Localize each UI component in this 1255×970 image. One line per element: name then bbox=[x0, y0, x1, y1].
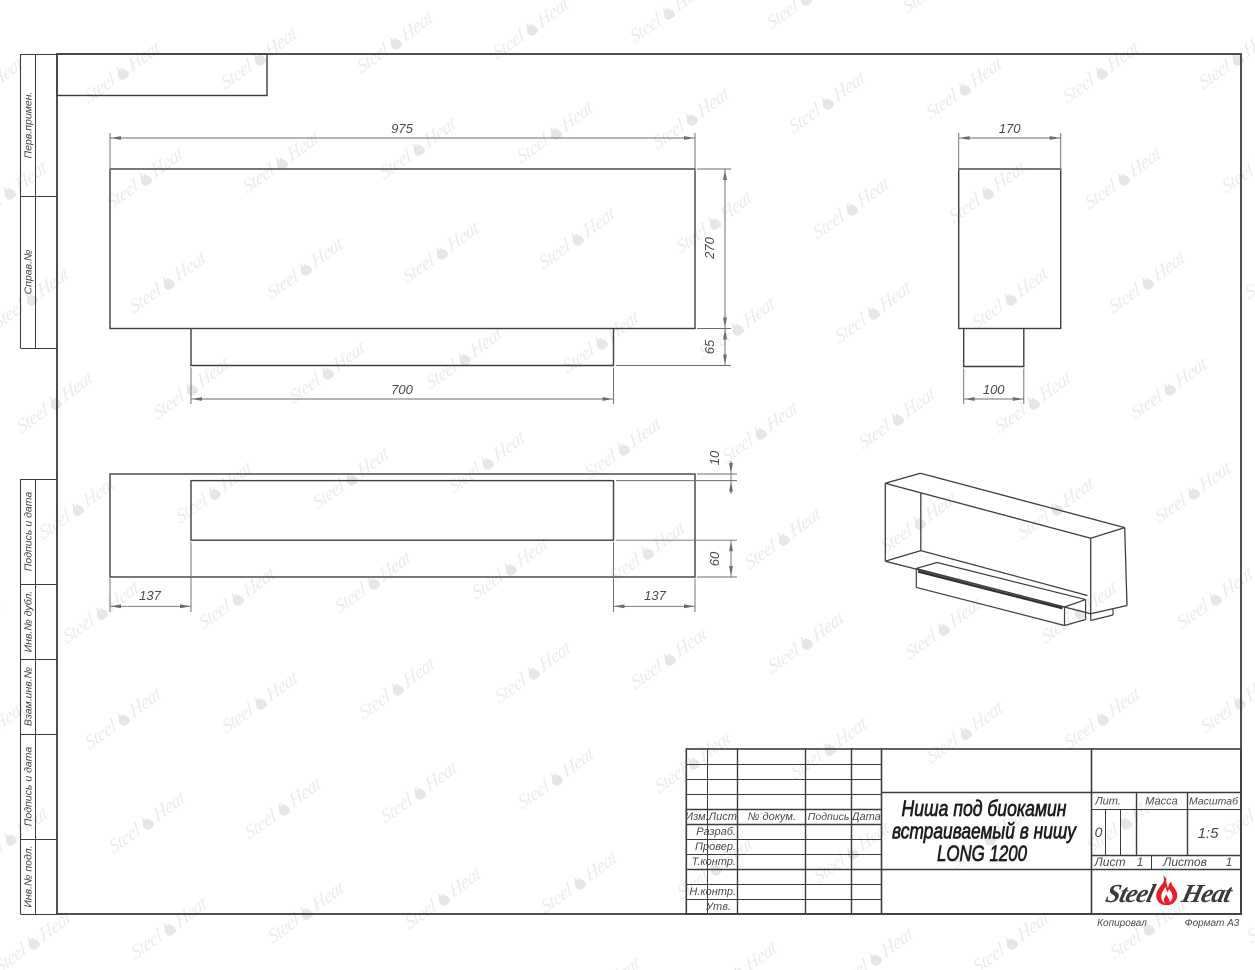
svg-text:Heat: Heat bbox=[1178, 878, 1236, 908]
svg-text:100: 100 bbox=[983, 382, 1005, 397]
svg-text:700: 700 bbox=[391, 382, 413, 397]
svg-text:Т.контр.: Т.контр. bbox=[692, 856, 736, 868]
svg-text:270: 270 bbox=[702, 236, 717, 259]
svg-text:Формат А3: Формат А3 bbox=[1185, 918, 1240, 929]
svg-text:Справ.№: Справ.№ bbox=[23, 250, 35, 295]
svg-text:Разраб.: Разраб. bbox=[696, 826, 736, 838]
svg-text:Дата: Дата bbox=[850, 811, 881, 823]
svg-text:Лист: Лист bbox=[708, 811, 737, 823]
svg-text:1: 1 bbox=[1137, 855, 1144, 869]
svg-text:137: 137 bbox=[139, 588, 161, 603]
svg-text:65: 65 bbox=[702, 339, 717, 354]
svg-text:Утв.: Утв. bbox=[705, 901, 731, 913]
svg-text:Н.контр.: Н.контр. bbox=[689, 886, 736, 898]
svg-text:Steel: Steel bbox=[1103, 878, 1159, 908]
svg-text:Листов: Листов bbox=[1162, 855, 1207, 869]
svg-text:Изм.: Изм. bbox=[685, 811, 708, 823]
svg-text:Инв.№ подл.: Инв.№ подл. bbox=[23, 845, 35, 907]
svg-text:0: 0 bbox=[1095, 824, 1103, 840]
svg-text:Инв.№ дубл.: Инв.№ дубл. bbox=[23, 591, 35, 653]
svg-text:Подпись и дата: Подпись и дата bbox=[23, 747, 35, 827]
svg-text:Масса: Масса bbox=[1145, 796, 1178, 808]
svg-text:Лит.: Лит. bbox=[1094, 796, 1121, 808]
svg-text:1: 1 bbox=[1226, 855, 1233, 869]
svg-text:1:5: 1:5 bbox=[1198, 825, 1220, 842]
svg-text:Копировал: Копировал bbox=[1097, 918, 1147, 929]
svg-text:60: 60 bbox=[707, 551, 722, 566]
svg-text:№ докум.: № докум. bbox=[748, 811, 796, 823]
svg-text:Взам.инв.№: Взам.инв.№ bbox=[23, 667, 35, 726]
svg-text:Лист: Лист bbox=[1094, 855, 1126, 869]
svg-text:Масштаб: Масштаб bbox=[1189, 796, 1239, 808]
svg-text:10: 10 bbox=[707, 450, 722, 465]
svg-text:Перв.примен.: Перв.примен. bbox=[23, 92, 35, 159]
svg-text:137: 137 bbox=[644, 588, 666, 603]
svg-text:LONG 1200: LONG 1200 bbox=[937, 841, 1027, 866]
svg-text:Подпись и дата: Подпись и дата bbox=[23, 492, 35, 572]
svg-text:встраиваемый в нишу: встраиваемый в нишу bbox=[892, 819, 1077, 844]
svg-text:Ниша под биокамин: Ниша под биокамин bbox=[902, 796, 1067, 821]
svg-text:Провер.: Провер. bbox=[695, 841, 736, 853]
svg-text:170: 170 bbox=[999, 121, 1021, 136]
svg-text:Подпись: Подпись bbox=[808, 811, 850, 823]
svg-text:975: 975 bbox=[391, 121, 413, 136]
